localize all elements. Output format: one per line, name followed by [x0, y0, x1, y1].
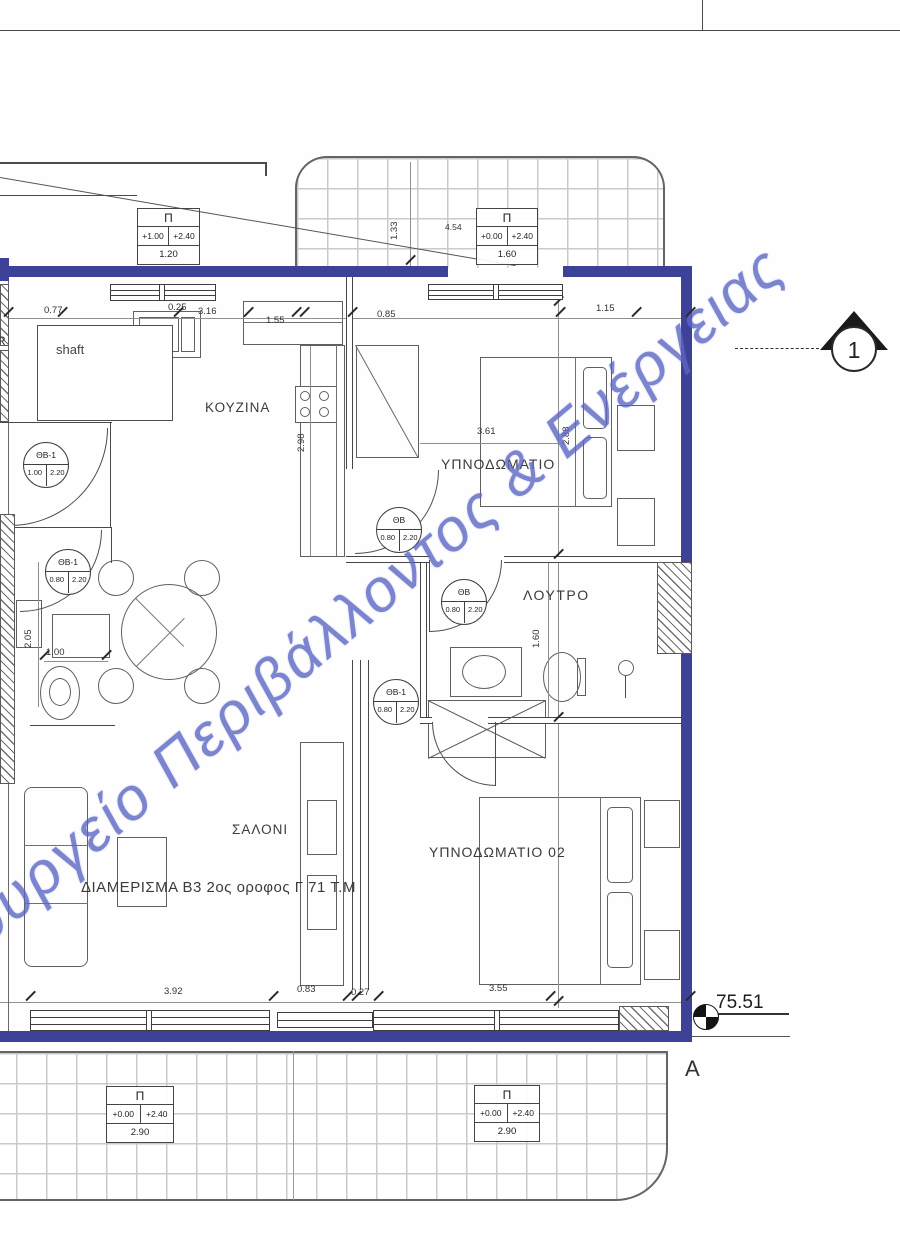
opening-width: 1.20 — [138, 246, 199, 264]
dim-line-kitchen-vertical — [310, 346, 311, 556]
dim-text: 3.92 — [164, 986, 183, 997]
window-bottom-2 — [373, 1010, 619, 1031]
window-mullion — [159, 285, 165, 300]
dim-text: 4.54 — [445, 222, 462, 232]
partition-kitchen-bedroom1 — [346, 277, 353, 469]
door-tag-height: 2.20 — [465, 602, 487, 623]
nightstand-4 — [644, 930, 680, 980]
door-tag-name: ΘΒ-1 — [374, 680, 418, 702]
opening-table-bottom-left: Π +0.00+2.40 2.90 — [106, 1086, 174, 1143]
kitchen-counter-right-line — [336, 345, 337, 557]
window-top-2 — [428, 284, 563, 300]
dining-chair — [98, 560, 134, 596]
terrace-bottom — [0, 1051, 668, 1201]
door-leaf-bedroom2 — [495, 722, 496, 786]
kitchen-counter-top — [243, 301, 343, 345]
hob-burner — [300, 391, 310, 401]
vanity-basin — [462, 655, 506, 689]
canopy-right-stub — [265, 162, 267, 176]
floor-plan: shaft — [0, 0, 900, 1244]
dim-tick — [555, 307, 565, 317]
dim-text: 0.77 — [44, 305, 63, 316]
door-tag-1: ΘΒ-1 1.002.20 — [23, 442, 69, 488]
nightstand-3 — [644, 800, 680, 848]
dim-line-160 — [548, 562, 549, 718]
dim-text: 2.98 — [296, 434, 307, 453]
kitchen-sink-drainer — [181, 317, 195, 352]
window-mullion — [493, 285, 499, 299]
dim-line-bottom — [0, 1002, 692, 1003]
wc-bottom-wall — [30, 725, 115, 726]
opening-width: 1.60 — [477, 246, 537, 264]
opening-width: 2.90 — [475, 1123, 539, 1141]
wc-right-wall — [111, 527, 112, 563]
wall-right — [681, 266, 692, 1042]
wall-bottom — [0, 1031, 692, 1042]
nightstand-2 — [617, 498, 655, 546]
opening-head: +2.40 — [169, 227, 199, 245]
window-top-1 — [110, 284, 216, 301]
partition-living-3 — [368, 660, 369, 990]
level-value: 75.51 — [716, 992, 764, 1014]
bed-2-headline — [600, 797, 601, 985]
opening-symbol: Π — [107, 1087, 173, 1105]
bed-2-pillow-2 — [607, 892, 633, 968]
top-right-vertical-line — [702, 0, 703, 31]
dim-text: 1.15 — [596, 303, 615, 314]
partition-living-2 — [360, 660, 361, 990]
dim-text: 1.55 — [266, 315, 285, 326]
hall-top-wall — [0, 422, 112, 423]
window-bottom-1 — [30, 1010, 270, 1031]
kitchen-counter-line — [243, 322, 343, 323]
canopy-top-line — [0, 162, 266, 164]
dining-chair — [184, 560, 220, 596]
section-line — [735, 348, 819, 349]
wall-top-right-segment — [563, 266, 692, 277]
window-mullion — [494, 1011, 500, 1030]
door-tag-height: 2.20 — [397, 702, 419, 723]
wc-top-wall — [0, 527, 112, 528]
opening-sill: +1.00 — [138, 227, 169, 245]
opening-head: +2.40 — [141, 1105, 174, 1123]
dim-text: 3.55 — [489, 983, 508, 994]
dim-text: 0.27 — [351, 987, 370, 998]
room-label-living: ΣΑΛΟΝΙ — [232, 822, 288, 837]
dim-text: 3.16 — [198, 306, 217, 317]
dim-text: 0.25 — [168, 302, 187, 313]
partition-bathroom-bottom-right — [488, 717, 692, 724]
shaft-box — [37, 325, 173, 421]
opening-symbol: Π — [477, 209, 537, 227]
opening-sill: +0.00 — [107, 1105, 141, 1123]
door-tag-width: 0.80 — [374, 702, 397, 723]
hob-burner — [319, 407, 329, 417]
tv-unit-inner-1 — [307, 800, 337, 855]
window-mullion — [146, 1011, 152, 1030]
dim-tick — [373, 991, 383, 1001]
hatch-right-wall — [657, 562, 692, 654]
dim-text: 2.05 — [23, 630, 34, 649]
dim-text: 0.85 — [377, 309, 396, 320]
dim-text: 0.83 — [297, 984, 316, 995]
dim-text: 1.33 — [389, 222, 400, 241]
edge-label: R — [0, 334, 6, 348]
grid-letter: A — [685, 1056, 700, 1082]
opening-table-top-right: Π +0.00+2.40 1.60 — [476, 208, 538, 265]
dim-tick — [631, 307, 641, 317]
room-label-kitchen: ΚΟΥΖΙΝΑ — [205, 400, 270, 415]
room-label-bedroom2: ΥΠΝΟΔΩΜΑΤΙΟ 02 — [429, 844, 566, 860]
hob-burner — [319, 391, 329, 401]
opening-symbol: Π — [138, 209, 199, 227]
sliding-door-living — [277, 1012, 373, 1028]
dim-tick — [268, 991, 278, 1001]
opening-head: +2.40 — [508, 1104, 540, 1122]
bed-2-pillow-1 — [607, 807, 633, 883]
partition-living-1 — [352, 660, 353, 990]
lamp-stem — [625, 676, 626, 698]
opening-width: 2.90 — [107, 1124, 173, 1142]
window-glazing-line — [278, 1020, 372, 1021]
opening-symbol: Π — [475, 1086, 539, 1104]
tv-unit — [300, 742, 344, 986]
dim-text: 3.61 — [477, 426, 496, 437]
wall-top-left-segment — [8, 266, 448, 277]
hatch-left-mid — [0, 514, 15, 784]
dim-tick — [25, 991, 35, 1001]
dining-chair — [98, 668, 134, 704]
hob-burner — [300, 407, 310, 417]
terrace-divider-line — [293, 1051, 294, 1200]
opening-sill: +0.00 — [475, 1104, 508, 1122]
toilet-tank — [577, 658, 586, 696]
section-marker-circle: 1 — [831, 326, 877, 372]
lamp-symbol — [618, 660, 634, 676]
hatch-bottom-right — [619, 1006, 669, 1031]
door-tag-5: ΘΒ-1 0.802.20 — [373, 679, 419, 725]
door-tag-4: ΘΒ 0.802.20 — [441, 579, 487, 625]
top-boundary-line — [0, 30, 900, 31]
door-tag-2: ΘΒ-1 0.802.20 — [45, 549, 91, 595]
shaft-label: shaft — [56, 342, 84, 357]
opening-sill: +0.00 — [477, 227, 508, 245]
toilet-wc-seat — [49, 678, 71, 706]
opening-table-bottom-right: Π +0.00+2.40 2.90 — [474, 1085, 540, 1142]
door-tag-height: 2.20 — [69, 572, 91, 593]
partition-bathroom-bottom-left — [420, 717, 432, 724]
hall-right-wall — [110, 422, 111, 528]
dim-text: 1.00 — [46, 647, 65, 658]
dim-line-100 — [44, 661, 108, 662]
dim-text: 1.60 — [531, 630, 542, 649]
hatch-left-upper — [0, 350, 9, 422]
canopy-lower-line — [0, 195, 137, 196]
wall-left-stub — [0, 258, 9, 281]
dim-line-balcony-vertical — [410, 162, 411, 266]
apartment-label: ΔΙΑΜΕΡΙΣΜΑ Β3 2ος οροφος Γ 71 Τ.Μ — [81, 879, 356, 896]
opening-table-top-left: Π +1.00+2.40 1.20 — [137, 208, 200, 265]
opening-head: +2.40 — [508, 227, 538, 245]
level-baseline — [688, 1036, 790, 1037]
dim-tick — [545, 991, 555, 1001]
room-label-bathroom: ΛΟΥΤΡΟ — [523, 587, 590, 603]
door-arc-bedroom2 — [432, 722, 496, 786]
